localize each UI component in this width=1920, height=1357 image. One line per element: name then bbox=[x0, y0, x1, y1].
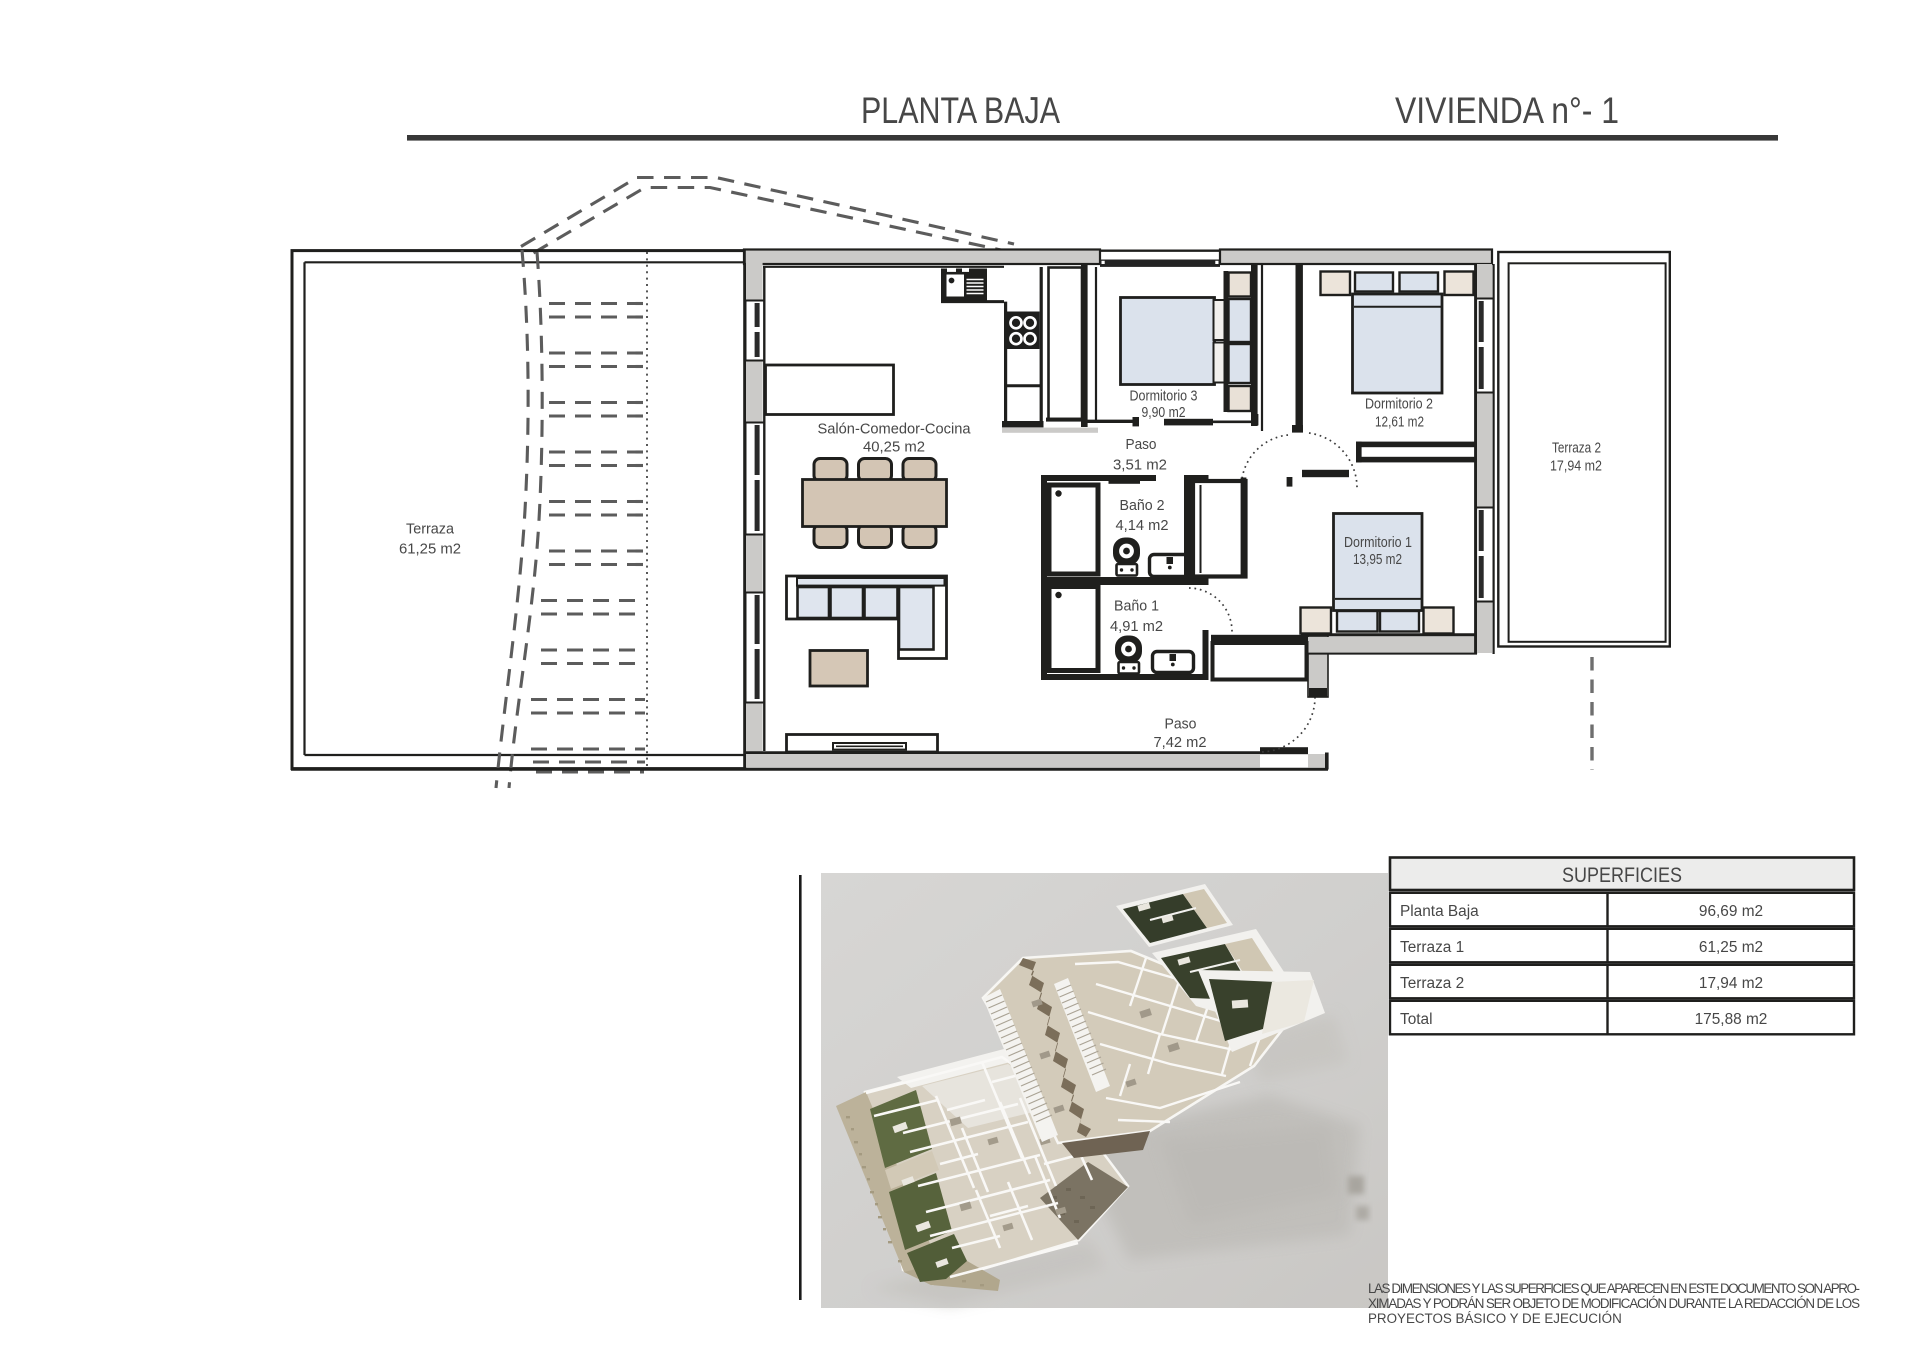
svg-text:Terraza 2: Terraza 2 bbox=[1552, 441, 1601, 457]
svg-text:Paso: Paso bbox=[1126, 436, 1157, 453]
svg-text:96,69 m2: 96,69 m2 bbox=[1699, 903, 1763, 920]
svg-text:Dormitorio 1: Dormitorio 1 bbox=[1344, 535, 1412, 551]
svg-text:Terraza 1: Terraza 1 bbox=[1400, 939, 1464, 956]
svg-text:61,25 m2: 61,25 m2 bbox=[1699, 939, 1763, 956]
svg-text:Terraza 2: Terraza 2 bbox=[1400, 975, 1464, 992]
svg-text:Planta Baja: Planta Baja bbox=[1400, 903, 1479, 920]
svg-text:9,90 m2: 9,90 m2 bbox=[1142, 404, 1186, 421]
svg-text:LAS DIMENSIONES Y LAS SUPERFIC: LAS DIMENSIONES Y LAS SUPERFICIES QUE AP… bbox=[1368, 1281, 1860, 1296]
svg-text:Terraza: Terraza bbox=[406, 521, 455, 538]
svg-text:Baño 2: Baño 2 bbox=[1120, 497, 1165, 514]
svg-text:VIVIENDA n°- 1: VIVIENDA n°- 1 bbox=[1395, 90, 1619, 131]
svg-text:175,88 m2: 175,88 m2 bbox=[1695, 1011, 1768, 1028]
svg-text:Salón-Comedor-Cocina: Salón-Comedor-Cocina bbox=[818, 421, 972, 438]
svg-text:SUPERFICIES: SUPERFICIES bbox=[1562, 863, 1682, 887]
svg-text:Paso: Paso bbox=[1165, 716, 1197, 733]
svg-text:4,91 m2: 4,91 m2 bbox=[1110, 618, 1163, 635]
svg-text:Total: Total bbox=[1400, 1011, 1433, 1028]
svg-text:17,94 m2: 17,94 m2 bbox=[1699, 975, 1763, 992]
svg-text:12,61 m2: 12,61 m2 bbox=[1375, 414, 1424, 431]
svg-text:17,94 m2: 17,94 m2 bbox=[1550, 459, 1602, 475]
svg-text:XIMADAS Y PODRÁN SER OBJETO DE: XIMADAS Y PODRÁN SER OBJETO DE MODIFICAC… bbox=[1368, 1296, 1860, 1311]
svg-text:Baño 1: Baño 1 bbox=[1114, 598, 1159, 615]
svg-text:13,95 m2: 13,95 m2 bbox=[1353, 552, 1402, 568]
svg-text:61,25 m2: 61,25 m2 bbox=[399, 541, 461, 558]
svg-text:PROYECTOS BÁSICO Y DE EJECUCIÓ: PROYECTOS BÁSICO Y DE EJECUCIÓN bbox=[1368, 1311, 1622, 1326]
svg-text:7,42 m2: 7,42 m2 bbox=[1154, 734, 1207, 751]
svg-text:PLANTA BAJA: PLANTA BAJA bbox=[861, 90, 1060, 131]
svg-text:4,14 m2: 4,14 m2 bbox=[1116, 517, 1169, 534]
svg-text:Dormitorio 2: Dormitorio 2 bbox=[1365, 396, 1433, 413]
svg-text:Dormitorio 3: Dormitorio 3 bbox=[1130, 388, 1198, 405]
svg-text:40,25 m2: 40,25 m2 bbox=[863, 439, 925, 456]
svg-text:3,51 m2: 3,51 m2 bbox=[1113, 457, 1167, 474]
